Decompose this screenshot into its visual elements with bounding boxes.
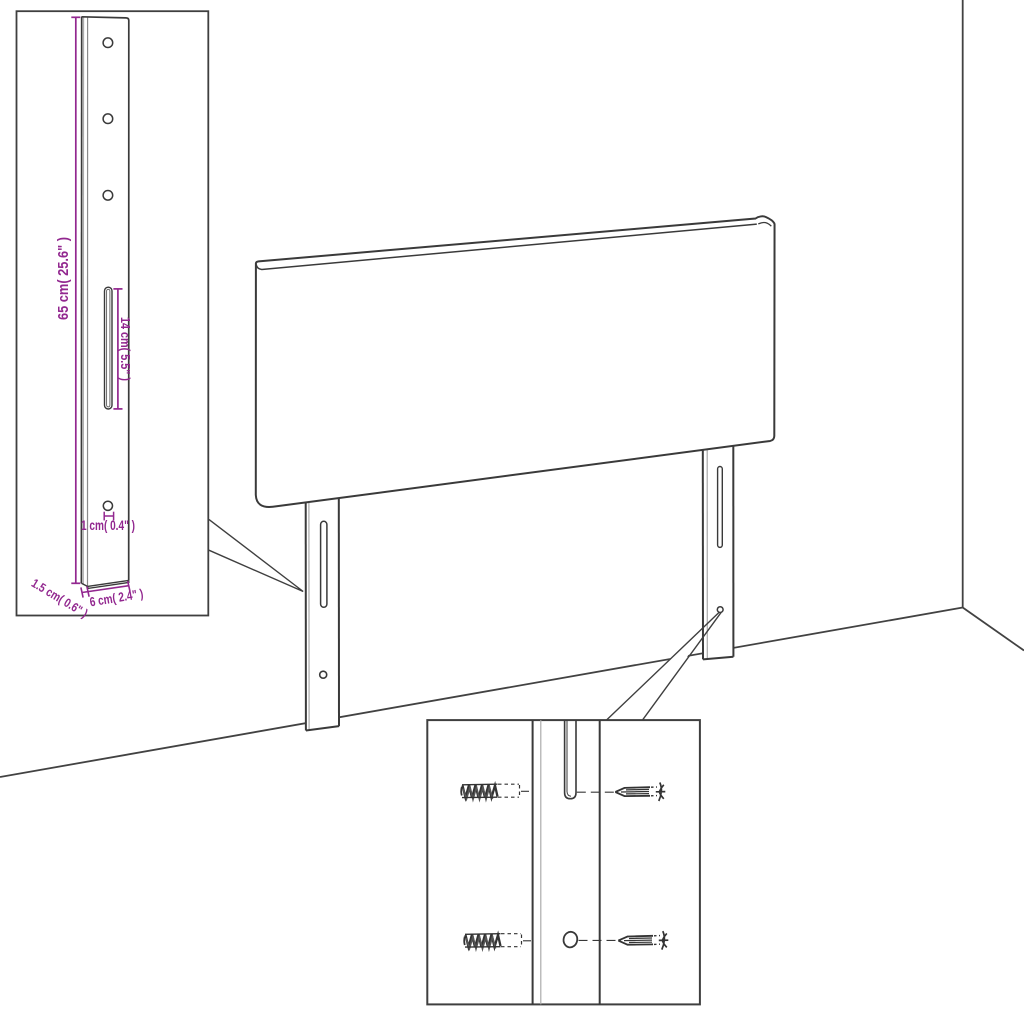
svg-text:1 cm( 0.4" ): 1 cm( 0.4" ): [81, 518, 135, 533]
svg-text:14 cm( 5.5" ): 14 cm( 5.5" ): [118, 317, 133, 381]
svg-text:65 cm( 25.6" ): 65 cm( 25.6" ): [56, 237, 72, 320]
svg-text:6 cm( 2.4" ): 6 cm( 2.4" ): [89, 586, 145, 610]
